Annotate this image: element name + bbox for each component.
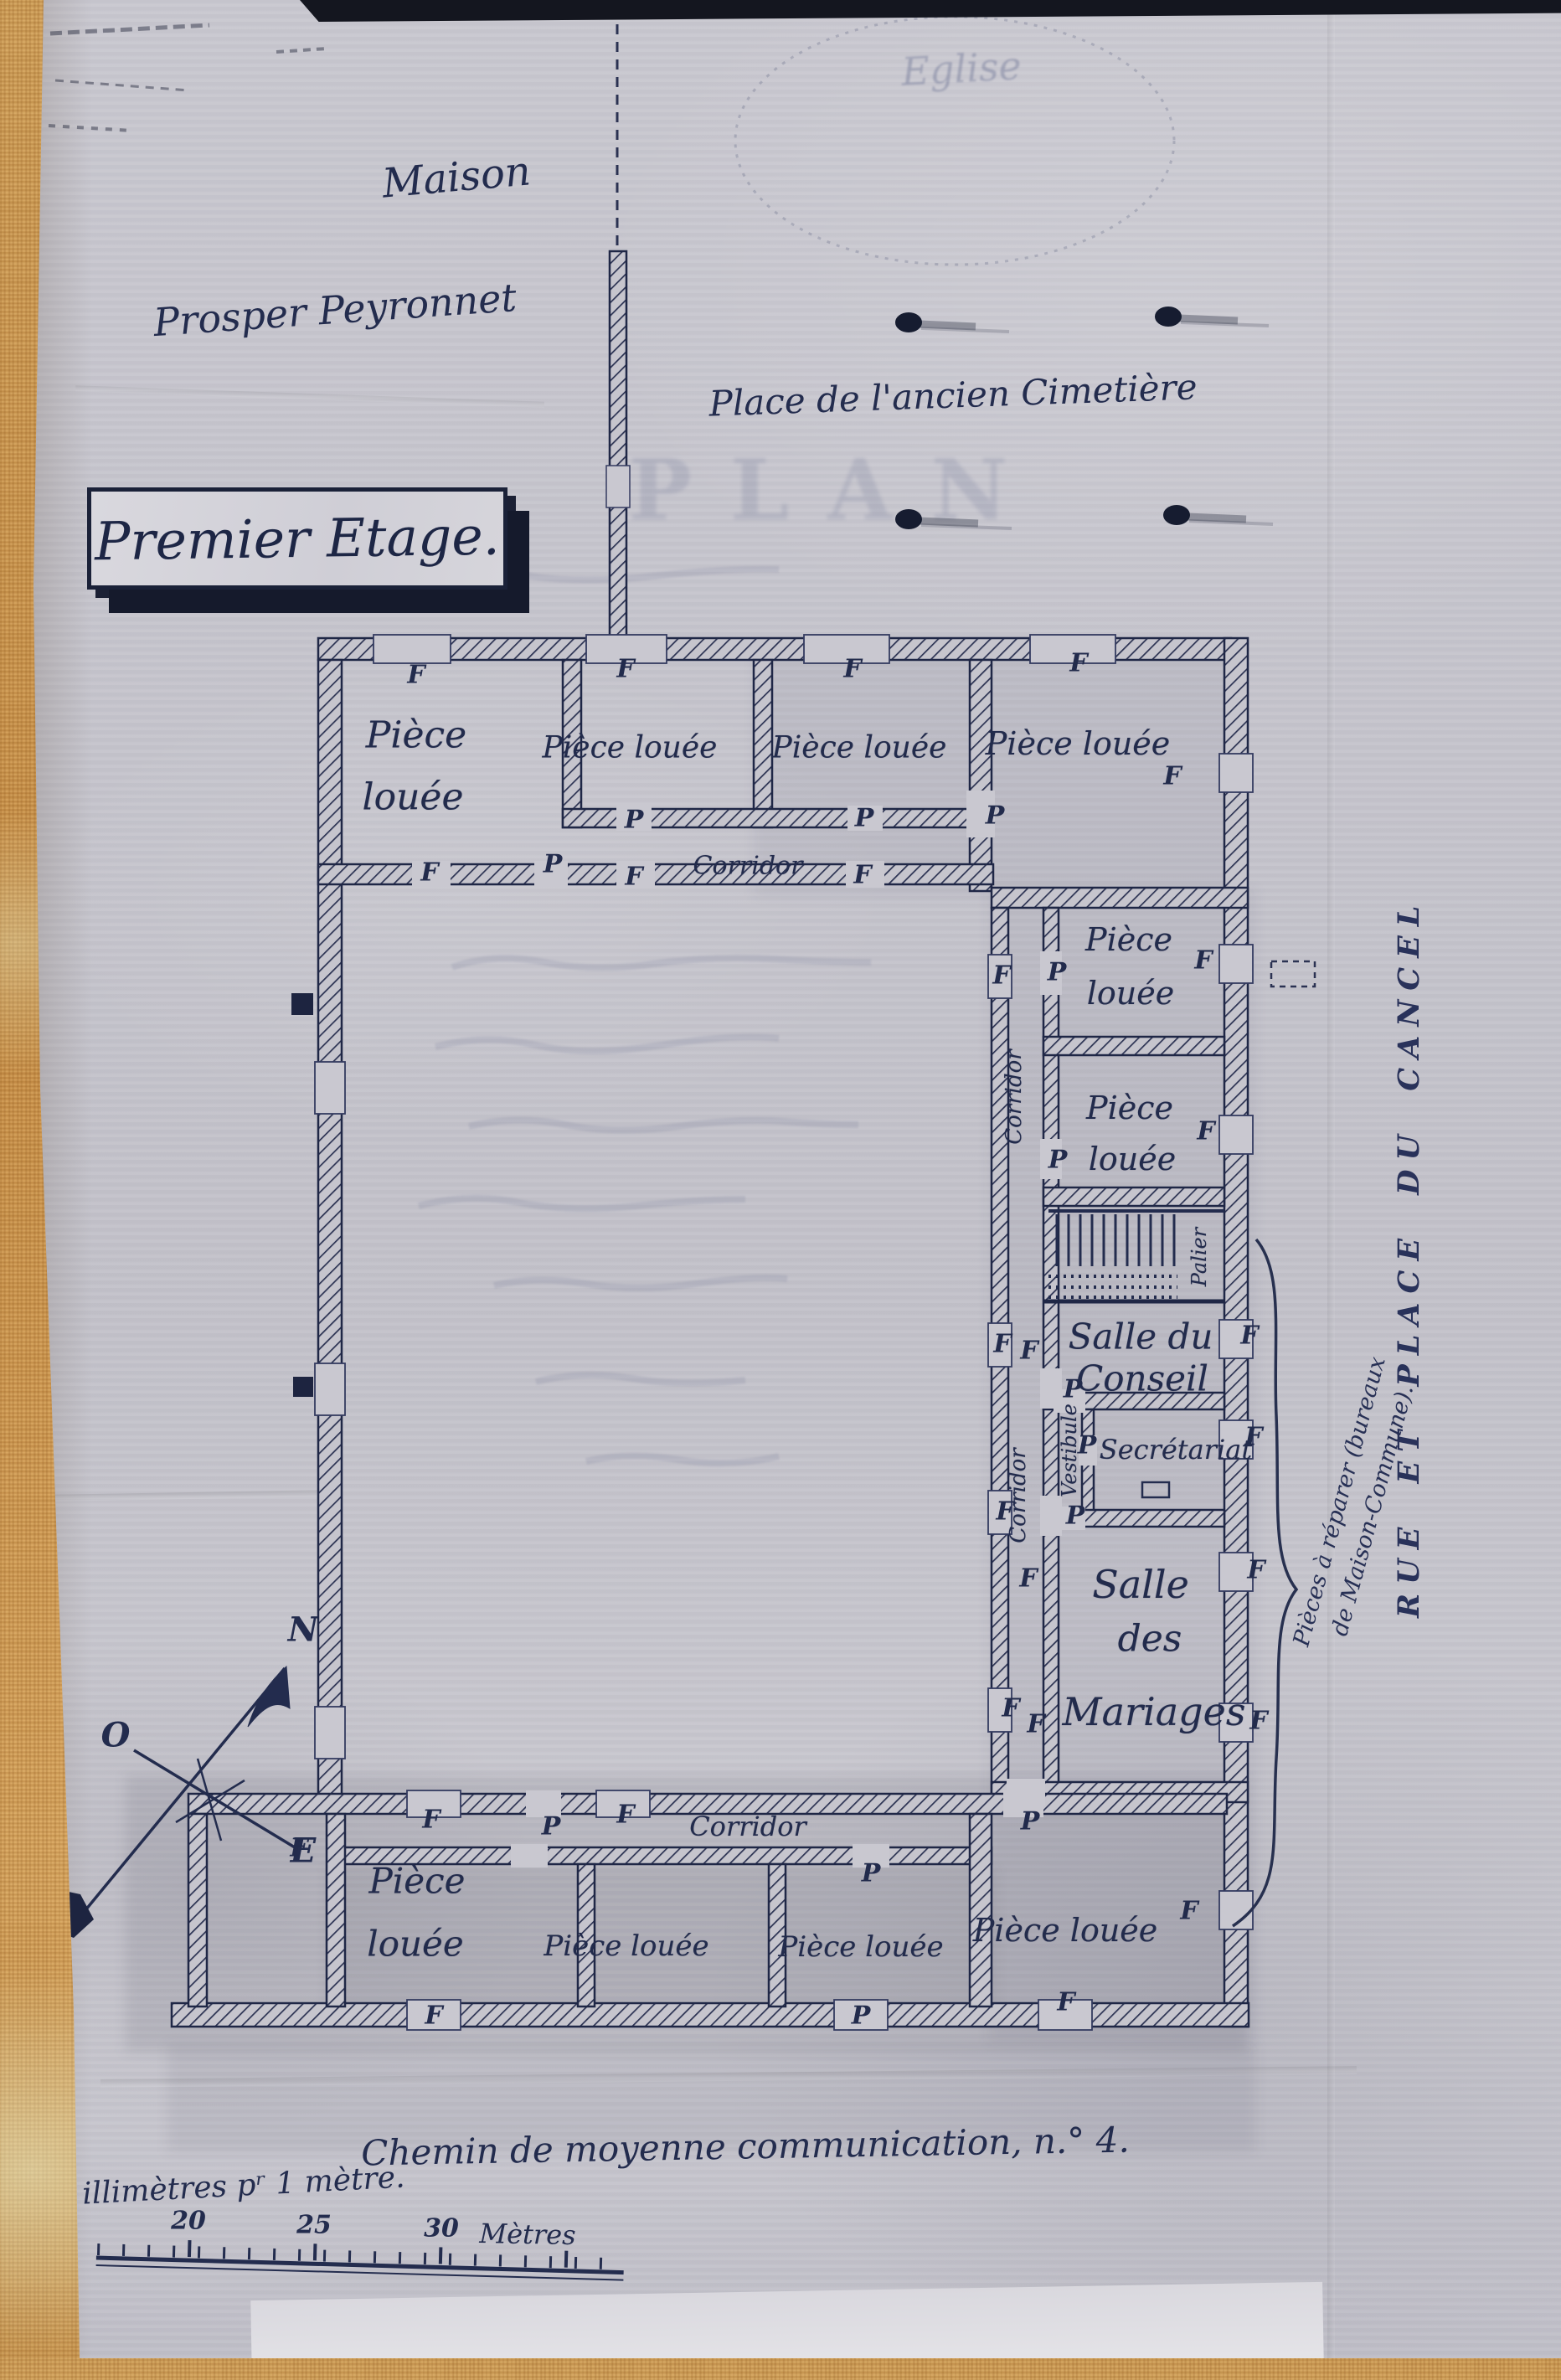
window-marker: F xyxy=(1194,946,1212,976)
room-label: Palier xyxy=(1187,1228,1211,1286)
compass-south-label: S xyxy=(36,1907,60,1946)
plan-drawing xyxy=(0,0,1561,2358)
room-label: Salle du xyxy=(1069,1316,1213,1357)
room-label: Pièce louée xyxy=(544,1929,708,1963)
door-marker: P xyxy=(1048,1146,1068,1175)
room-label: Secrétariat xyxy=(1100,1434,1252,1466)
scanned-floor-plan-photo: Eglise PLAN xyxy=(0,0,1561,2358)
door-marker: P xyxy=(986,801,1005,831)
room-label: louée xyxy=(1087,975,1174,1012)
door-marker: P xyxy=(855,804,874,833)
door-marker: P xyxy=(625,806,644,835)
window-marker: F xyxy=(1249,1707,1267,1736)
door-marker: P xyxy=(1066,1502,1085,1531)
page-title: Premier Etage. xyxy=(95,505,501,572)
window-marker: F xyxy=(422,1806,440,1835)
room-label: Pièce xyxy=(366,714,466,757)
door-marker: P xyxy=(862,1859,881,1888)
dashed-annotation-box xyxy=(1271,961,1315,987)
door-marker: P xyxy=(852,2001,871,2031)
window-marker: F xyxy=(1240,1321,1258,1351)
wall-fixture xyxy=(291,993,313,1015)
window-marker: F xyxy=(420,858,438,888)
room-label: Pièce xyxy=(1086,1090,1173,1126)
ghost-handwriting xyxy=(402,569,871,1464)
room-label: Pièce louée xyxy=(986,725,1171,762)
room-label: louée xyxy=(367,1924,463,1965)
window-marker: F xyxy=(993,1330,1011,1359)
smudge-marks xyxy=(49,25,327,131)
room-label: Mariages xyxy=(1063,1689,1246,1734)
door-marker: P xyxy=(1078,1431,1097,1460)
room-label: Pièce louée xyxy=(772,731,947,765)
window-marker: F xyxy=(1020,1337,1038,1366)
room-label: louée xyxy=(363,776,464,819)
room-label: Pièce louée xyxy=(973,1912,1158,1949)
window-marker: F xyxy=(616,655,634,684)
window-marker: F xyxy=(425,2001,442,2031)
room-label: Pièce louée xyxy=(778,1930,943,1964)
wall-fixture xyxy=(293,1377,313,1397)
room-label: Pièce louée xyxy=(543,731,718,765)
desk-symbol xyxy=(1142,1482,1169,1497)
room-label: Corridor xyxy=(693,852,803,881)
window-marker: F xyxy=(1163,762,1181,791)
window-marker: F xyxy=(996,1497,1013,1527)
window-marker: F xyxy=(1002,1694,1019,1723)
place-ink-blobs xyxy=(895,307,1273,529)
door-marker: P xyxy=(1021,1807,1040,1837)
window-marker: F xyxy=(1069,649,1087,678)
window-marker: F xyxy=(1019,1564,1037,1594)
room-label: Pièce xyxy=(1085,921,1172,958)
room-label: Conseil xyxy=(1076,1358,1208,1399)
room-label: Corridor xyxy=(1006,1448,1031,1543)
title-cartouche: Premier Etage. xyxy=(87,487,507,590)
door-marker: P xyxy=(544,850,563,879)
faint-stamp-circle xyxy=(735,17,1174,265)
paper-sheet: Eglise PLAN xyxy=(0,0,1561,2358)
window-marker: F xyxy=(407,661,425,690)
window-marker: F xyxy=(1197,1117,1214,1146)
window-marker: F xyxy=(843,655,861,684)
room-label: Pièce xyxy=(369,1861,466,1902)
window-marker: F xyxy=(1057,1988,1074,2017)
room-label: Salle xyxy=(1092,1562,1189,1607)
scale-bar xyxy=(96,2246,625,2280)
window-marker: F xyxy=(1180,1897,1198,1926)
window-marker: F xyxy=(625,863,642,892)
window-marker: F xyxy=(1244,1423,1262,1452)
window-marker: F xyxy=(1027,1710,1044,1739)
window-marker: F xyxy=(616,1800,634,1830)
door-marker: P xyxy=(542,1812,561,1842)
room-label: des xyxy=(1118,1618,1182,1661)
room-label: louée xyxy=(1089,1141,1176,1177)
boundary-wall xyxy=(606,7,630,638)
window-marker: F xyxy=(992,961,1010,991)
window-marker: F xyxy=(290,1834,307,1863)
room-label: Corridor xyxy=(1002,1049,1027,1144)
door-marker: P xyxy=(1048,958,1067,987)
window-marker: F xyxy=(853,861,871,890)
window-marker: F xyxy=(1247,1556,1265,1585)
room-label: Corridor xyxy=(689,1811,806,1842)
door-marker: P xyxy=(1064,1375,1083,1404)
